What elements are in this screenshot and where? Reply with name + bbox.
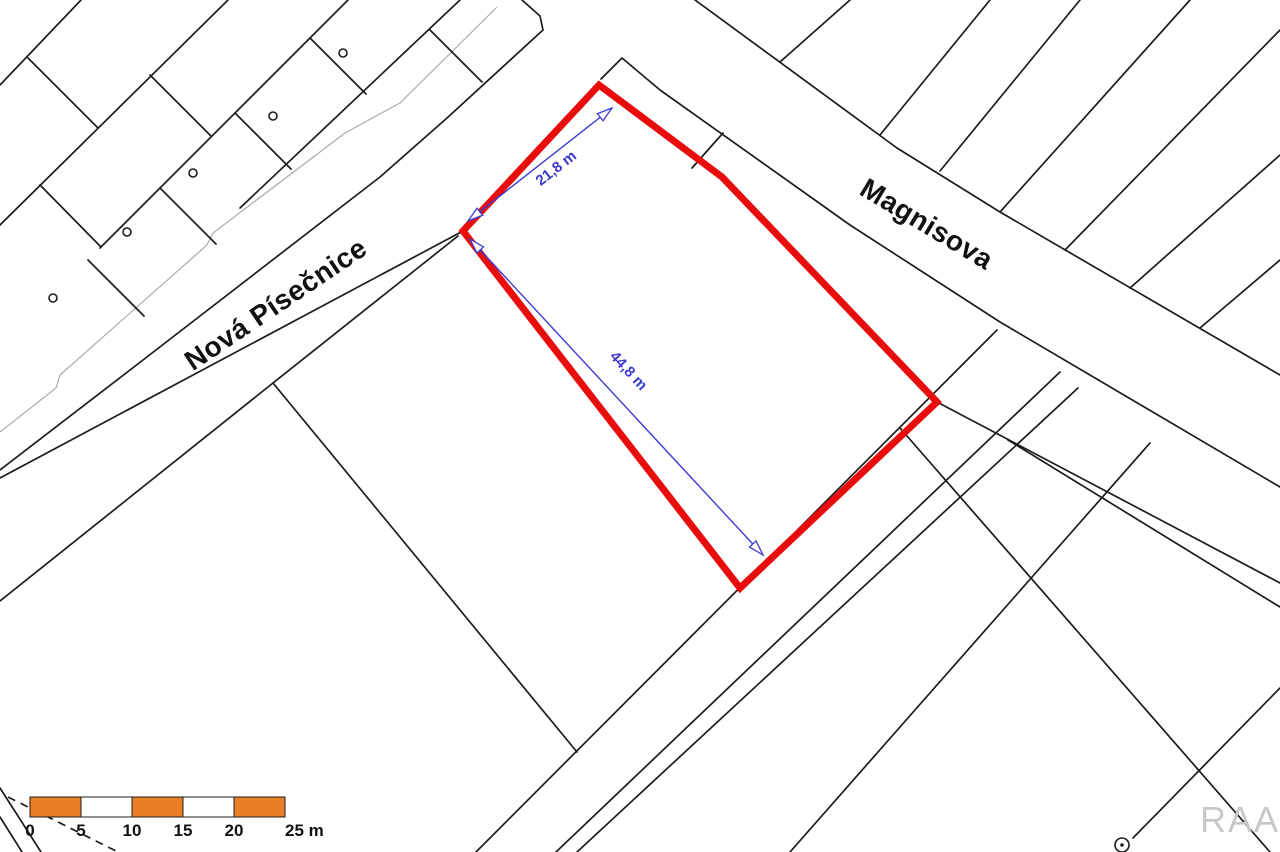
scale-bar-segment [30,797,81,817]
map-background [0,0,1280,852]
parcel-point-circle [123,228,131,236]
scale-bar-segment [132,797,183,817]
parcel-point-circle [189,169,197,177]
scale-bar-label: 5 [76,821,85,840]
scale-bar-label: 25 m [285,821,324,840]
scale-bar-label: 15 [174,821,193,840]
scale-bar-segment [81,797,132,817]
parcel-point-circle [339,49,347,57]
scale-bar-segment [234,797,285,817]
scale-bar-label: 20 [225,821,244,840]
scale-bar-label: 0 [25,821,34,840]
scale-bar-label: 10 [123,821,142,840]
watermark: RAA [1200,799,1280,840]
map-canvas: 21,8 m44,8 mNová PísečniceMagnisova05101… [0,0,1280,852]
parcel-point-circle [269,112,277,120]
cadastral-map-viewport: 21,8 m44,8 mNová PísečniceMagnisova05101… [0,0,1280,852]
survey-point-dot [1120,843,1124,847]
parcel-point-circle [49,294,57,302]
scale-bar-segment [183,797,234,817]
